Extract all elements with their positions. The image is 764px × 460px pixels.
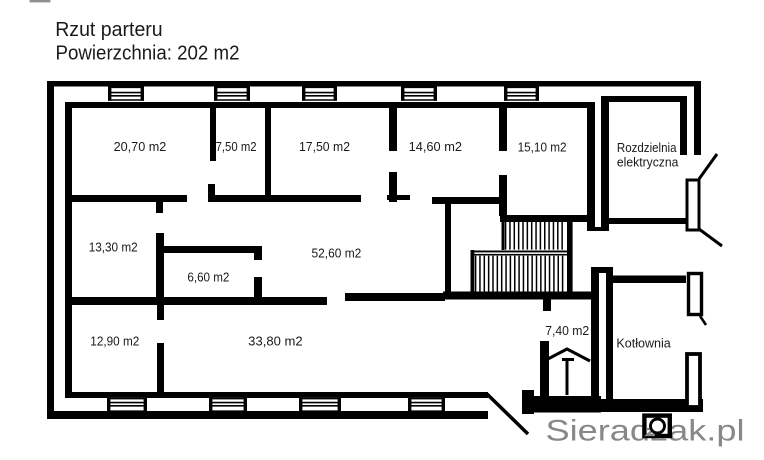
svg-text:elektryczna: elektryczna bbox=[617, 155, 679, 170]
svg-text:13,30 m2: 13,30 m2 bbox=[89, 240, 138, 255]
svg-text:Rzut parteru: Rzut parteru bbox=[55, 18, 163, 41]
svg-text:14,60 m2: 14,60 m2 bbox=[409, 139, 462, 154]
svg-text:15,10 m2: 15,10 m2 bbox=[518, 140, 567, 155]
svg-text:7,40 m2: 7,40 m2 bbox=[545, 323, 589, 338]
svg-text:17,50 m2: 17,50 m2 bbox=[299, 139, 350, 154]
svg-text:Rozdzielnia: Rozdzielnia bbox=[617, 140, 677, 155]
svg-text:52,60 m2: 52,60 m2 bbox=[312, 246, 362, 261]
svg-text:33,80 m2: 33,80 m2 bbox=[248, 334, 302, 349]
svg-text:20,70 m2: 20,70 m2 bbox=[114, 139, 167, 154]
svg-text:12,90 m2: 12,90 m2 bbox=[90, 334, 139, 349]
svg-text:Kotłownia: Kotłownia bbox=[616, 336, 671, 351]
svg-text:6,60 m2: 6,60 m2 bbox=[187, 269, 229, 284]
svg-text:7,50 m2: 7,50 m2 bbox=[216, 139, 257, 154]
svg-text:Powierzchnia: 202 m2: Powierzchnia: 202 m2 bbox=[56, 41, 240, 64]
